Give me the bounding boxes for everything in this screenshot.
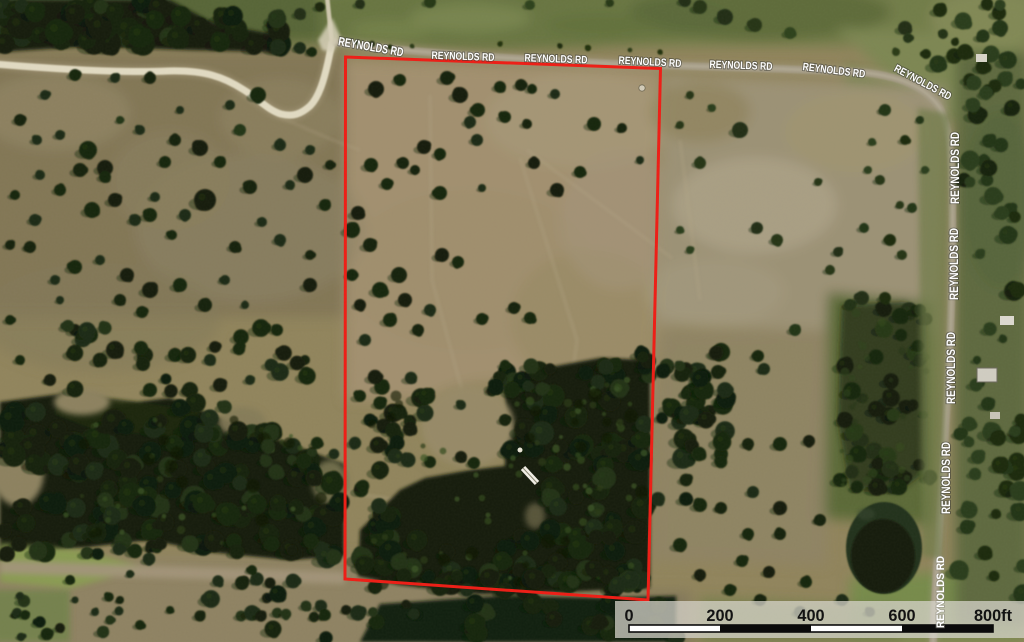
svg-text:REYNOLDS RD: REYNOLDS RD <box>935 556 947 628</box>
svg-text:400: 400 <box>797 607 824 625</box>
svg-text:600: 600 <box>888 607 915 625</box>
svg-text:0: 0 <box>624 607 633 625</box>
svg-text:800ft: 800ft <box>974 607 1013 625</box>
svg-text:200: 200 <box>706 607 733 625</box>
